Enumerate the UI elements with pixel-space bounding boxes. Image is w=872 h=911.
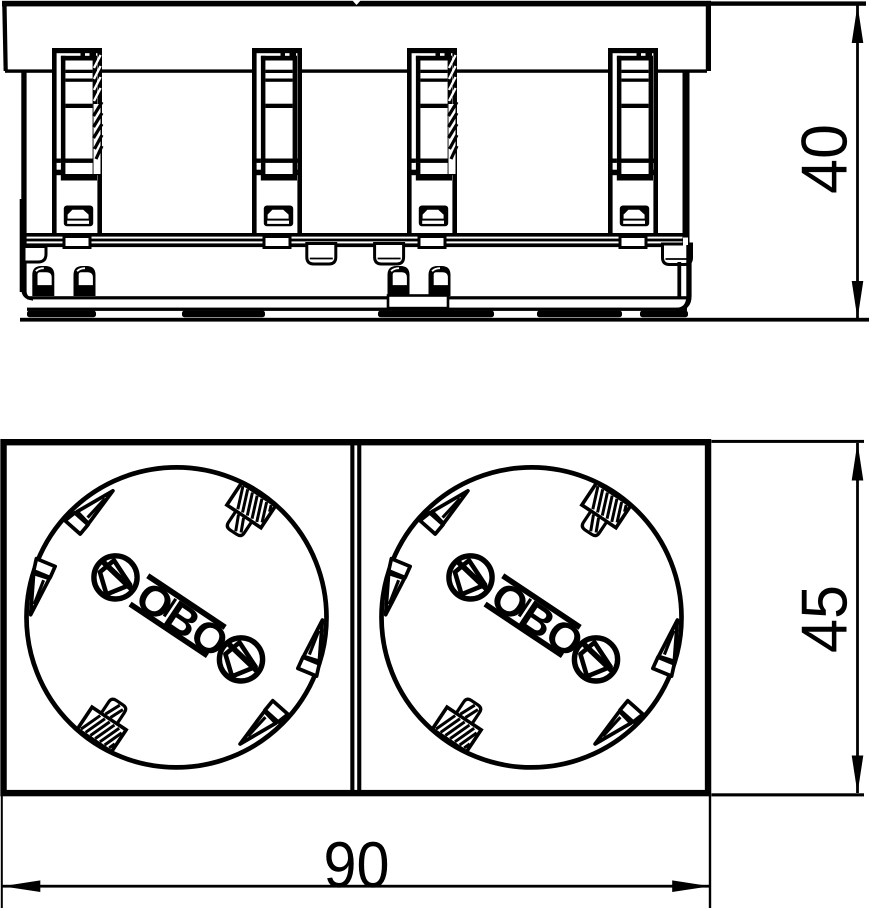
svg-text:40: 40 bbox=[788, 124, 861, 194]
svg-text:90: 90 bbox=[324, 828, 390, 901]
svg-text:45: 45 bbox=[788, 585, 861, 653]
